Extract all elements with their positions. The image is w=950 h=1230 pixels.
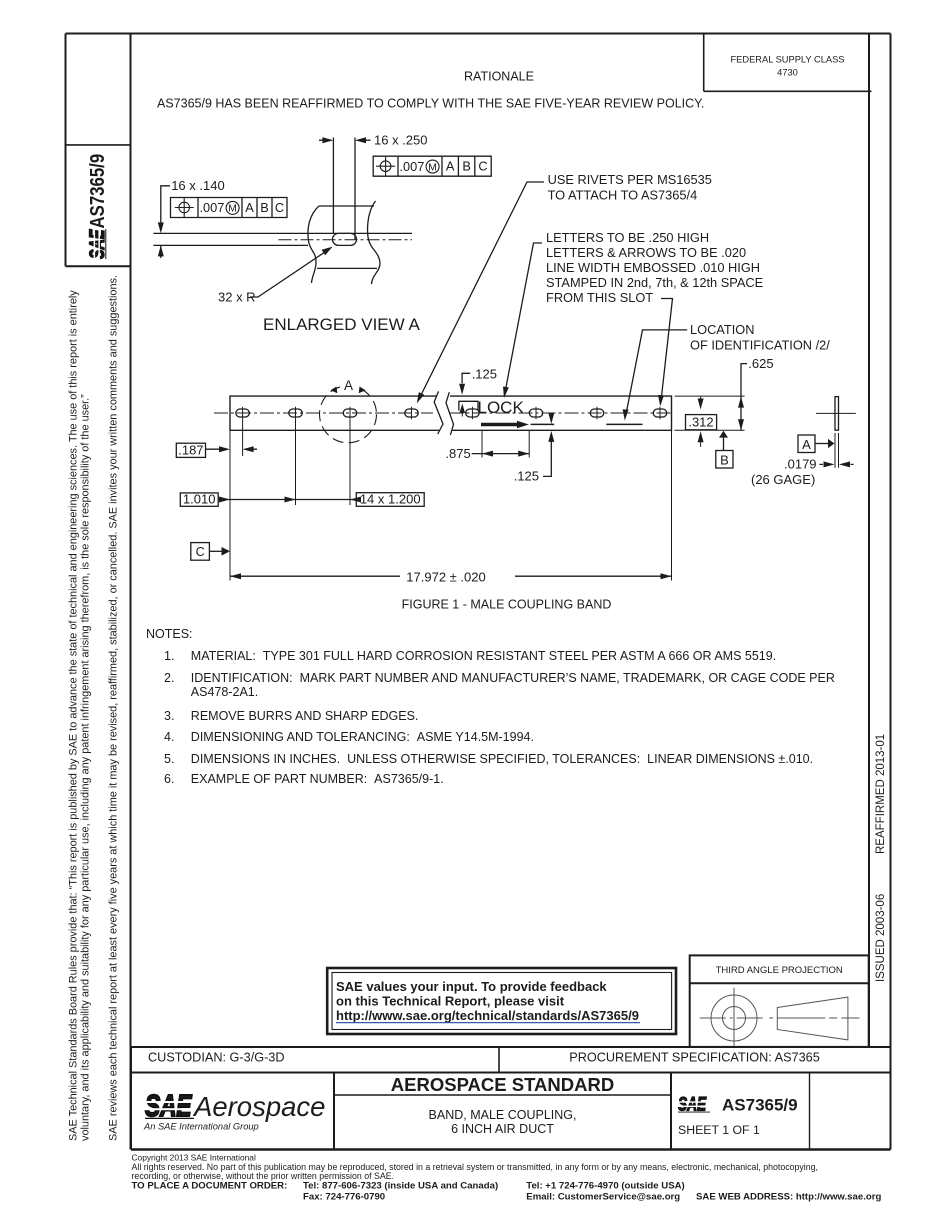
svg-text:ENLARGED VIEW A: ENLARGED VIEW A xyxy=(263,315,420,334)
svg-text:C: C xyxy=(275,200,284,215)
svg-text:17.972 ± .020: 17.972 ± .020 xyxy=(406,569,485,584)
svg-text:C: C xyxy=(196,545,205,559)
svg-text:2.: 2. xyxy=(164,671,174,685)
svg-text:.0179: .0179 xyxy=(784,456,817,471)
svg-text:recording, or otherwise, witho: recording, or otherwise, without the pri… xyxy=(132,1171,395,1181)
svg-text:on this Technical Report, plea: on this Technical Report, please visit xyxy=(336,994,565,1009)
svg-text:AS7365/9: AS7365/9 xyxy=(722,1096,798,1115)
svg-text:.007: .007 xyxy=(200,200,225,215)
svg-text:STAMPED IN 2nd, 7th, & 12th SP: STAMPED IN 2nd, 7th, & 12th SPACE xyxy=(546,275,763,290)
svg-text:AS478-2A1.: AS478-2A1. xyxy=(191,685,258,699)
svg-text:.625: .625 xyxy=(748,356,773,371)
svg-text:M: M xyxy=(228,204,237,215)
svg-text:Email: CustomerService@sae.org: Email: CustomerService@sae.org xyxy=(526,1192,680,1203)
svg-text:B: B xyxy=(720,452,729,467)
svg-text:Copyright 2013 SAE Internation: Copyright 2013 SAE International xyxy=(132,1153,256,1163)
svg-text:6 INCH AIR DUCT: 6 INCH AIR DUCT xyxy=(451,1122,554,1136)
svg-text:5.: 5. xyxy=(164,752,174,766)
svg-text:NOTES:: NOTES: xyxy=(146,627,193,641)
svg-text:voluntary, and its applicabili: voluntary, and its applicability and sui… xyxy=(80,394,92,1141)
svg-text:IDENTIFICATION: MARK PART NUM: IDENTIFICATION: MARK PART NUMBER AND MAN… xyxy=(191,671,835,685)
svg-text:RATIONALE: RATIONALE xyxy=(464,70,534,84)
svg-text:A: A xyxy=(802,437,811,452)
svg-text:.187: .187 xyxy=(178,442,203,457)
svg-text:LOCK: LOCK xyxy=(478,398,525,417)
svg-text:EXAMPLE OF PART NUMBER: AS736: EXAMPLE OF PART NUMBER: AS7365/9-1. xyxy=(191,772,444,786)
svg-text:FROM THIS SLOT: FROM THIS SLOT xyxy=(546,290,653,305)
svg-text:THIRD ANGLE PROJECTION: THIRD ANGLE PROJECTION xyxy=(716,965,843,976)
svg-text:LINE WIDTH EMBOSSED .010 HIGH: LINE WIDTH EMBOSSED .010 HIGH xyxy=(546,260,760,275)
svg-text:A: A xyxy=(245,200,254,215)
svg-text:16 x .250: 16 x .250 xyxy=(374,133,428,148)
svg-text:C: C xyxy=(478,159,487,174)
svg-text:.875: .875 xyxy=(445,446,470,461)
svg-text:SAE: SAE xyxy=(145,1087,192,1122)
svg-text:BAND, MALE COUPLING,: BAND, MALE COUPLING, xyxy=(429,1108,577,1122)
svg-text:4730: 4730 xyxy=(777,68,798,78)
svg-text:REAFFIRMED 2013-01: REAFFIRMED 2013-01 xyxy=(875,734,887,854)
svg-text:A: A xyxy=(446,159,455,174)
svg-text:Fax: 724-776-0790: Fax: 724-776-0790 xyxy=(303,1192,385,1203)
svg-text:SAE values your input. To prov: SAE values your input. To provide feedba… xyxy=(336,979,607,994)
svg-text:.125: .125 xyxy=(514,469,539,484)
svg-text:USE RIVETS PER MS16535: USE RIVETS PER MS16535 xyxy=(548,172,712,187)
svg-text:SHEET 1 OF 1: SHEET 1 OF 1 xyxy=(678,1123,760,1137)
svg-text:14 x 1.200: 14 x 1.200 xyxy=(360,491,421,506)
svg-text:32 x R: 32 x R xyxy=(218,290,256,305)
svg-text:AS7365/9: AS7365/9 xyxy=(86,154,109,229)
svg-text:Aerospace: Aerospace xyxy=(192,1091,325,1122)
svg-text:SAE: SAE xyxy=(85,229,108,259)
svg-text:LETTERS TO BE .250 HIGH: LETTERS TO BE .250 HIGH xyxy=(546,230,709,245)
svg-text:REMOVE BURRS AND SHARP EDGES.: REMOVE BURRS AND SHARP EDGES. xyxy=(191,709,419,723)
svg-text:6.: 6. xyxy=(164,772,174,786)
svg-text:AS7365/9 HAS BEEN REAFFIRMED T: AS7365/9 HAS BEEN REAFFIRMED TO COMPLY W… xyxy=(157,96,704,110)
svg-text:FIGURE 1 - MALE COUPLING BAND: FIGURE 1 - MALE COUPLING BAND xyxy=(402,598,612,612)
svg-text:FEDERAL SUPPLY CLASS: FEDERAL SUPPLY CLASS xyxy=(730,55,844,65)
svg-text:3.: 3. xyxy=(164,709,174,723)
svg-text:LOCATION: LOCATION xyxy=(690,322,754,337)
svg-text:MATERIAL: TYPE 301 FULL HARD: MATERIAL: TYPE 301 FULL HARD CORROSION R… xyxy=(191,649,776,663)
svg-text:.125: .125 xyxy=(472,367,497,382)
svg-text:.007: .007 xyxy=(400,159,425,174)
svg-text:SAE Technical Standards Board: SAE Technical Standards Board Rules prov… xyxy=(68,290,80,1141)
svg-text:.312: .312 xyxy=(688,414,713,429)
svg-text:PROCUREMENT SPECIFICATION: AS7: PROCUREMENT SPECIFICATION: AS7365 xyxy=(569,1051,820,1065)
svg-text:LETTERS & ARROWS TO BE .020: LETTERS & ARROWS TO BE .020 xyxy=(546,245,746,260)
svg-text:OF IDENTIFICATION /2/: OF IDENTIFICATION /2/ xyxy=(690,338,830,353)
svg-text:SAE reviews each technical rep: SAE reviews each technical report at lea… xyxy=(108,275,120,1141)
svg-text:(26 GAGE): (26 GAGE) xyxy=(751,472,815,487)
svg-text:DIMENSIONS IN INCHES. UNLESS: DIMENSIONS IN INCHES. UNLESS OTHERWISE S… xyxy=(191,752,813,766)
svg-text:B: B xyxy=(462,159,471,174)
svg-text:http://www.sae.org/technical/s: http://www.sae.org/technical/standards/A… xyxy=(336,1008,639,1023)
svg-text:TO ATTACH TO AS7365/4: TO ATTACH TO AS7365/4 xyxy=(548,188,698,203)
svg-text:ISSUED 2003-06: ISSUED 2003-06 xyxy=(875,894,887,982)
svg-text:Tel: 877-606-7323 (inside USA: Tel: 877-606-7323 (inside USA and Canada… xyxy=(303,1181,498,1192)
svg-text:SAE WEB ADDRESS: http://www.sa: SAE WEB ADDRESS: http://www.sae.org xyxy=(696,1192,881,1203)
svg-text:4.: 4. xyxy=(164,730,174,744)
svg-text:CUSTODIAN: G-3/G-3D: CUSTODIAN: G-3/G-3D xyxy=(148,1051,285,1065)
svg-text:TO PLACE A DOCUMENT ORDER:: TO PLACE A DOCUMENT ORDER: xyxy=(132,1181,288,1192)
svg-text:1.: 1. xyxy=(164,649,174,663)
svg-text:B: B xyxy=(260,200,269,215)
svg-text:1.010: 1.010 xyxy=(183,492,216,507)
svg-text:M: M xyxy=(428,162,437,173)
svg-text:An SAE International Group: An SAE International Group xyxy=(143,1122,259,1132)
svg-text:Tel: +1 724-776-4970 (outside: Tel: +1 724-776-4970 (outside USA) xyxy=(526,1181,684,1192)
svg-text:16 x .140: 16 x .140 xyxy=(171,178,225,193)
svg-text:DIMENSIONING AND TOLERANCING:: DIMENSIONING AND TOLERANCING: ASME Y14.5… xyxy=(191,730,534,744)
svg-text:A: A xyxy=(344,378,353,393)
svg-text:AEROSPACE STANDARD: AEROSPACE STANDARD xyxy=(391,1074,614,1095)
